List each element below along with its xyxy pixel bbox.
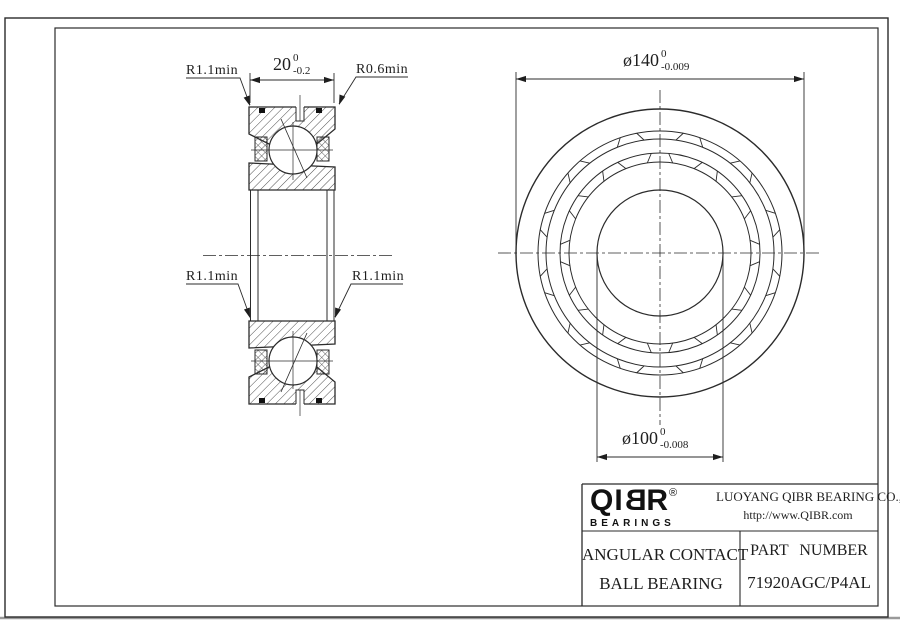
registered-trademark-symbol: ® [669,487,678,499]
sheet-frame [0,18,900,618]
width-dimension [250,73,334,103]
cage-pocket-left [255,137,267,161]
seal-mark [259,108,265,113]
logo-tagline: BEARINGS [590,518,718,529]
radius-label-top-right: R0.6min [356,62,408,78]
bore-dimension-text: ø100 0 -0.008 [622,426,688,450]
logo-wordmark: QIBR® [590,486,718,516]
cage-pocket-right [317,137,329,161]
lower-section [249,321,335,416]
upper-section [249,95,335,190]
cage-pocket-right [317,350,329,374]
radius-label-mid-right: R1.1min [352,269,404,285]
product-type-line2: BALL BEARING [582,574,740,594]
front-view [498,72,822,462]
company-website: http://www.QIBR.com [716,508,880,523]
cage-pocket-left [255,350,267,374]
company-name: LUOYANG QIBR BEARING CO., LTD [716,489,880,505]
radius-label-mid-left: R1.1min [186,269,238,285]
seal-mark [316,108,322,113]
engineering-drawing-canvas [0,0,900,636]
width-dimension-text: 20 0 -0.2 [273,52,310,76]
product-type-line1: ANGULAR CONTACT [582,545,740,565]
company-logo: QIBR® BEARINGS [590,486,718,529]
seal-mark [316,398,322,403]
part-number-value: 71920AGC/P4AL [740,573,878,593]
seal-mark [259,398,265,403]
part-number-label: PART NUMBER [740,542,878,560]
section-view [186,73,408,416]
od-dimension-text: ø140 0 -0.009 [623,48,689,72]
radius-label-top-left: R1.1min [186,63,238,79]
drawing-sheet: R1.1min R0.6min R1.1min R1.1min 20 0 -0.… [0,0,900,636]
